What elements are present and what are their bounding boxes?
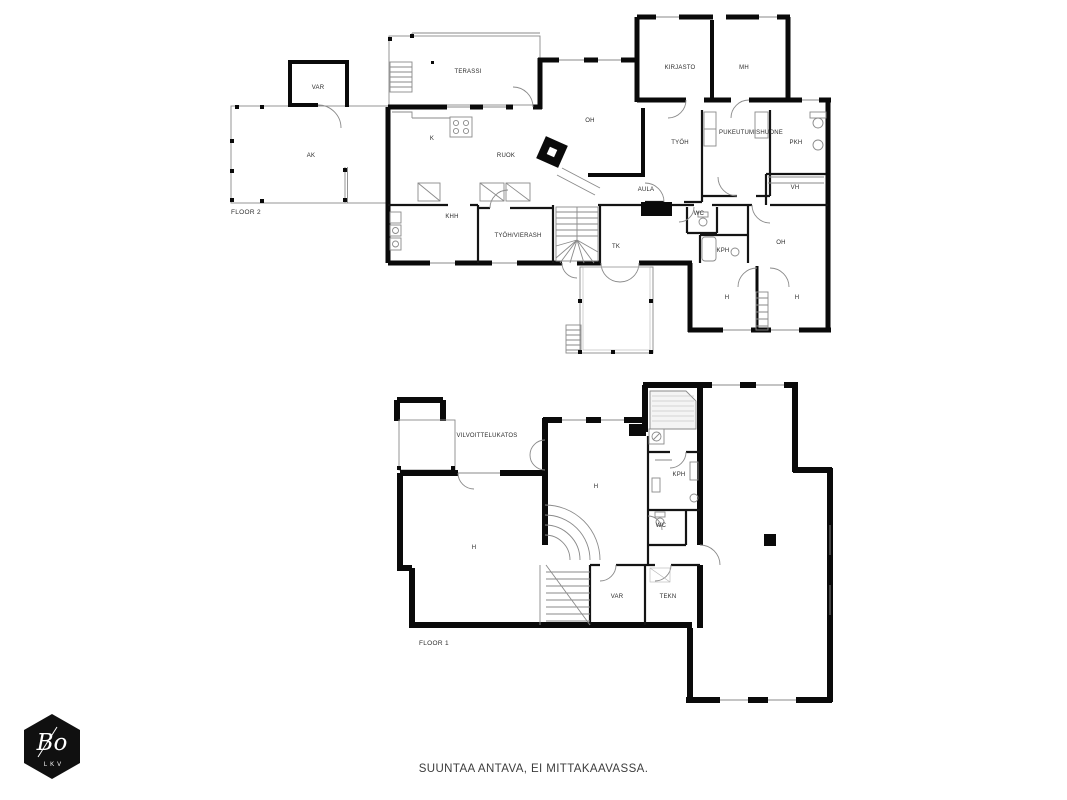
chimney-block	[764, 534, 776, 546]
room-label-vilvoittelukatos: VILVOITTELUKATOS	[457, 433, 518, 439]
floor1-label: FLOOR 1	[419, 640, 449, 647]
kph1-fixtures	[652, 460, 698, 502]
room-label-pukeutumishuone: PUKEUTUMISHUONE	[719, 130, 783, 136]
room-label-oh2: OH	[776, 240, 785, 246]
room-label-tyoh: TYÖH	[671, 140, 688, 146]
room-label-kirjasto: KIRJASTO	[665, 65, 696, 71]
fireplace-icon	[536, 136, 568, 168]
floor2-label: FLOOR 2	[231, 209, 261, 216]
sauna-heater-icon	[649, 429, 664, 444]
logo-brand-text: Bo	[36, 730, 68, 756]
room-label-ak: AK	[307, 153, 315, 159]
room-label-h2b: H	[795, 295, 800, 301]
room-label-ruok: RUOK	[497, 153, 515, 159]
room-label-tekn: TEKN	[660, 594, 677, 600]
room-label-kph1: KPH	[673, 472, 686, 478]
floor2-deck	[566, 267, 653, 353]
pkh-fixtures	[810, 112, 826, 150]
room-label-pkh: PKH	[790, 140, 803, 146]
logo-hexagon: Bo LKV	[23, 713, 83, 783]
ak-posts	[230, 105, 347, 203]
room-label-terassi: TERASSI	[454, 69, 481, 75]
floor2-staircase	[556, 207, 598, 263]
brand-logo: Bo LKV	[23, 713, 83, 783]
room-label-h1-left: H	[472, 545, 477, 551]
sauna-bench	[650, 391, 696, 429]
floorplan-page: VARTERASSIAKKRUOKOHKIRJASTOMHTYÖHPUKEUTU…	[0, 0, 1067, 800]
khh-fixtures	[390, 212, 401, 250]
room-label-khh: KHH	[445, 214, 458, 220]
floor1-staircase	[546, 565, 590, 625]
logo-sub-text: LKV	[44, 762, 64, 768]
room-label-var1: VAR	[611, 594, 624, 600]
room-label-tyoh-vierash: TYÖH/VIERASH	[494, 233, 541, 239]
room-label-aula: AULA	[638, 187, 654, 193]
room-label-wc2: WC	[694, 211, 704, 217]
terassi-stairs	[390, 62, 412, 92]
room-label-tk: TK	[612, 244, 620, 250]
room-label-wc1: WC	[656, 523, 666, 529]
curved-steps	[545, 505, 600, 560]
room-label-k: K	[430, 136, 434, 142]
room-label-var2: VAR	[312, 85, 325, 91]
room-label-kph2: KPH	[717, 248, 730, 254]
disclaimer-text: SUUNTAA ANTAVA, EI MITTAKAAVASSA.	[0, 763, 1067, 775]
room-label-vh: VH	[791, 185, 800, 191]
room-label-h1-center: H	[594, 484, 599, 490]
floor2-closets	[418, 112, 768, 201]
floorplan-drawing	[0, 0, 1067, 800]
stove-icon	[450, 117, 472, 137]
room-label-mh: MH	[739, 65, 749, 71]
room-label-oh: OH	[585, 118, 594, 124]
room-label-h2a: H	[725, 295, 730, 301]
